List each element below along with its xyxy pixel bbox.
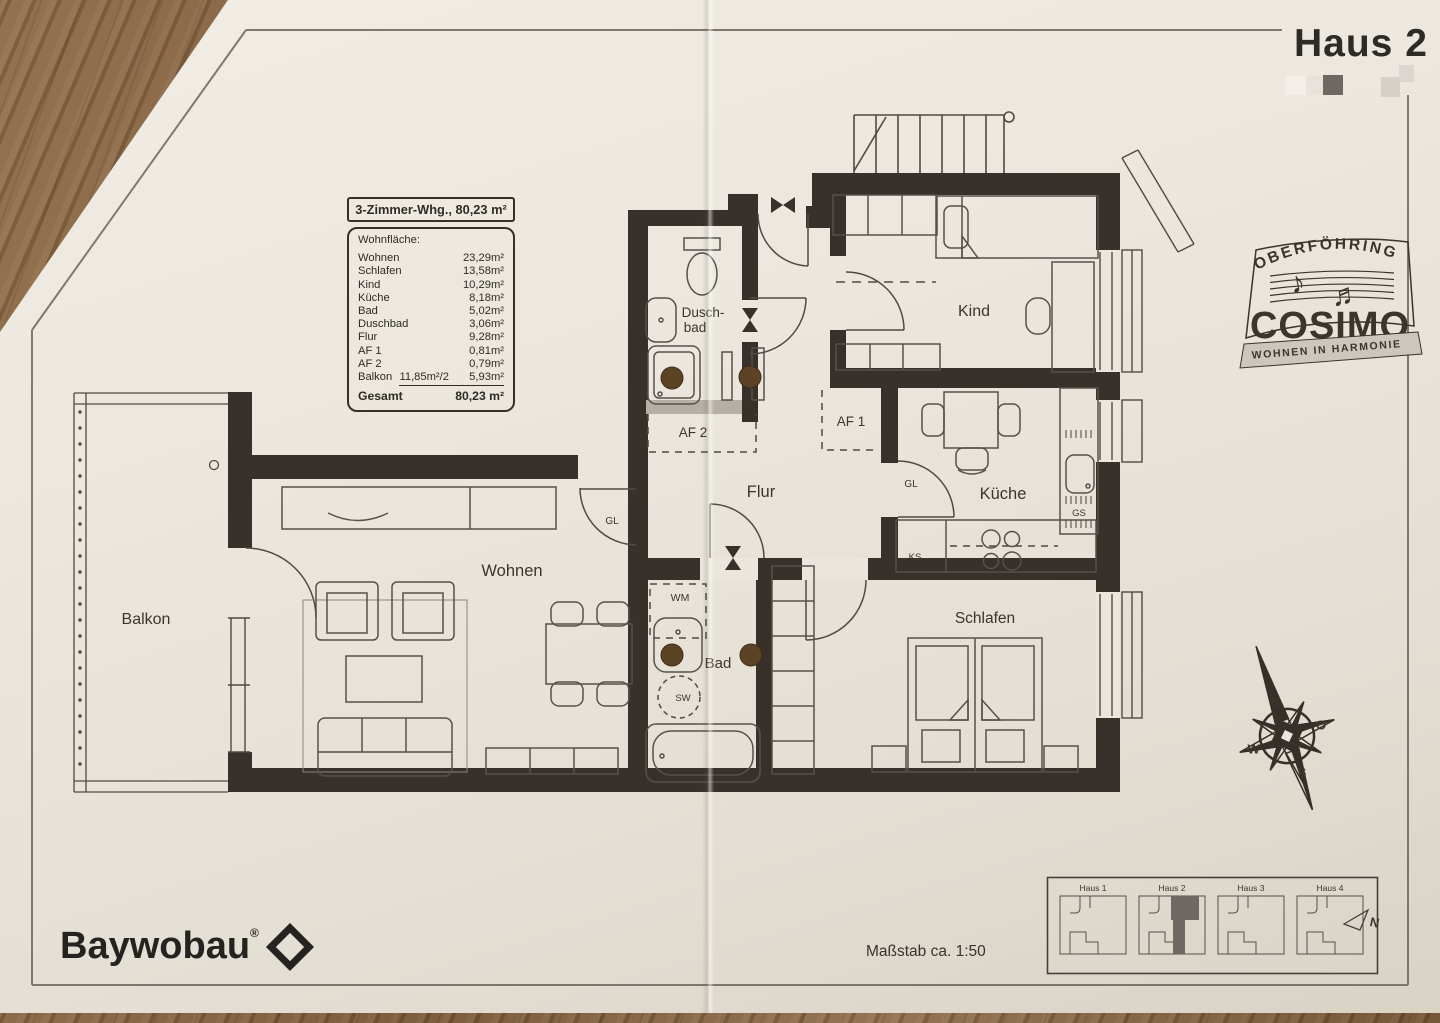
area-total-value: 80,23 m²: [455, 390, 504, 403]
area-row: Kind10,29m²: [358, 279, 504, 292]
railing-posts: [78, 410, 81, 765]
siteplan-label-haus2: Haus 2: [1159, 883, 1186, 893]
area-row-value: 5,93m²: [456, 371, 504, 386]
floorplan-sheet: Balkon Wohnen Flur Dusch- bad AF 2 AF 1 …: [0, 0, 1440, 1013]
paper-fold-crease: [702, 0, 714, 1013]
baywobau-logo: Baywobau®: [60, 927, 307, 965]
room-label-schlafen: Schlafen: [955, 610, 1015, 627]
legend-square-3: [1323, 75, 1343, 95]
siteplan-north-letter: N: [1369, 914, 1381, 931]
compass-letter-o: O: [1316, 717, 1326, 732]
area-row-balkon: Balkon11,85m²/25,93m²: [358, 371, 504, 386]
compass-letter-n: N: [1271, 694, 1280, 709]
area-row-value: 23,29m²: [456, 252, 504, 265]
siteplan-overview: Haus 1 Haus 2 Haus 3 Haus 4: [1046, 876, 1391, 978]
siteplan-label-haus4: Haus 4: [1317, 883, 1344, 893]
highlighted-apartment-unit: [1171, 896, 1199, 954]
area-row-value: 13,58m²: [456, 265, 504, 278]
area-row-label: Wohnen: [358, 252, 456, 265]
baywobau-wordmark: Baywobau: [60, 927, 250, 965]
area-row-value: 0,81m²: [456, 345, 504, 358]
area-table-body: Wohnfläche: Wohnen23,29m² Schlafen13,58m…: [347, 227, 515, 412]
svg-text:OBERFÖHRING: OBERFÖHRING: [1251, 236, 1400, 274]
area-row: Wohnen23,29m²: [358, 252, 504, 265]
area-row-label: Schlafen: [358, 265, 456, 278]
label-gl-kueche: GL: [904, 479, 918, 490]
area-row: Küche8,18m²: [358, 292, 504, 305]
area-row-value: 8,18m²: [456, 292, 504, 305]
exterior-wall-fragment: [1122, 150, 1194, 252]
room-labels: Balkon Wohnen Flur Dusch- bad AF 2 AF 1 …: [122, 303, 1086, 704]
scale-note: Maßstab ca. 1:50: [866, 943, 986, 961]
room-label-flur: Flur: [747, 483, 776, 501]
sheet-title: Haus 2: [1294, 22, 1428, 66]
compass-letter-w: W: [1247, 742, 1260, 757]
area-row-label: Kind: [358, 279, 456, 292]
furniture-kind: [833, 195, 1098, 372]
area-row-label: Flur: [358, 331, 456, 344]
room-label-af1: AF 1: [837, 414, 866, 429]
registered-mark: ®: [250, 927, 259, 939]
label-wm: WM: [671, 592, 690, 604]
label-ks: KS: [909, 552, 922, 563]
area-row-value: 3,06m²: [456, 318, 504, 331]
siteplan-units: [1060, 896, 1363, 954]
area-table-header: Wohnfläche:: [358, 234, 504, 247]
siteplan-north-arrow: N: [1344, 910, 1381, 931]
area-row-value: 5,02m²: [456, 305, 504, 318]
area-row-label: Küche: [358, 292, 456, 305]
photo-of-floorplan: Balkon Wohnen Flur Dusch- bad AF 2 AF 1 …: [0, 0, 1440, 1023]
compass-rose: N O S W: [1195, 612, 1385, 862]
area-row-value: 9,28m²: [456, 331, 504, 344]
area-row: AF 10,81m²: [358, 345, 504, 358]
area-row-label: Bad: [358, 305, 456, 318]
room-label-wohnen: Wohnen: [481, 562, 542, 580]
area-row-label: AF 2: [358, 358, 456, 371]
label-gs: GS: [1072, 508, 1086, 519]
siteplan-label-haus1: Haus 1: [1080, 883, 1107, 893]
area-row-value: 0,79m²: [456, 358, 504, 371]
music-note-icon: ♪: [1287, 265, 1309, 300]
area-row: Flur9,28m²: [358, 331, 504, 344]
area-row: Schlafen13,58m²: [358, 265, 504, 278]
area-row-label: AF 1: [358, 345, 456, 358]
area-row: AF 20,79m²: [358, 358, 504, 371]
light-partition-wall: [646, 400, 742, 414]
legend-square-4: [1381, 77, 1400, 97]
legend-square-2: [1306, 76, 1323, 95]
balcony-door-handle: [210, 461, 219, 470]
furniture-kueche: [896, 388, 1098, 572]
apartment-title: 3-Zimmer-Whg., 80,23 m²: [347, 197, 515, 222]
furniture-schlafen: [772, 566, 1078, 774]
balcony-railing: [74, 393, 228, 792]
area-row: Bad5,02m²: [358, 305, 504, 318]
area-total-label: Gesamt: [358, 390, 403, 403]
area-row-label: Balkon: [358, 371, 399, 386]
room-label-balkon: Balkon: [122, 611, 171, 628]
area-total-row: Gesamt80,23 m²: [358, 390, 504, 403]
siteplan-label-haus3: Haus 3: [1238, 883, 1265, 893]
label-sw: SW: [675, 693, 690, 704]
legend-square-5: [1399, 65, 1414, 82]
exterior-staircase: [854, 112, 1014, 173]
room-label-kind: Kind: [958, 303, 990, 320]
area-table: 3-Zimmer-Whg., 80,23 m² Wohnfläche: Wohn…: [347, 197, 515, 412]
area-row: Duschbad3,06m²: [358, 318, 504, 331]
area-row-value: 10,29m²: [456, 279, 504, 292]
room-label-kueche: Küche: [980, 485, 1027, 503]
legend-square-1: [1285, 76, 1306, 95]
area-row-label: Duschbad: [358, 318, 456, 331]
compass-letter-s: S: [1298, 765, 1307, 780]
label-gl-wohnen: GL: [605, 516, 619, 527]
compass-needle-north: [1249, 644, 1288, 723]
furniture-wohnen: [282, 487, 632, 776]
cosimo-top-text: OBERFÖHRING: [1251, 236, 1400, 274]
baywobau-diamond-icon: [266, 923, 314, 971]
cosimo-logo: ♪ ♬ OBERFÖHRING COSIMO WOHNEN IN HARMONI…: [1236, 210, 1428, 370]
door-symbols: [725, 197, 795, 570]
area-row-mid-value: 11,85m²/2: [399, 371, 456, 386]
